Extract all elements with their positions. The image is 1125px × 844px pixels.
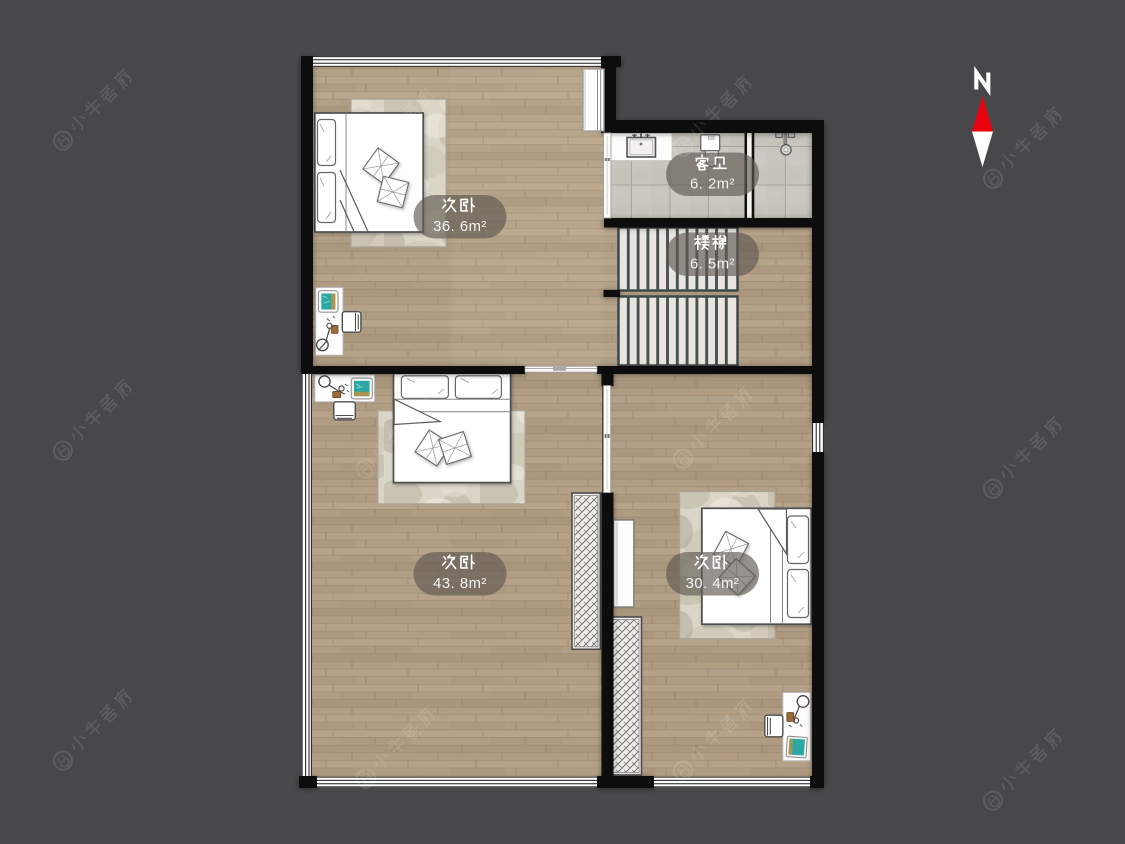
svg-text:43. 8m²: 43. 8m²	[433, 576, 487, 592]
svg-text:30. 4m²: 30. 4m²	[686, 576, 740, 592]
svg-text:36. 6m²: 36. 6m²	[433, 219, 487, 235]
svg-text:6. 2m²: 6. 2m²	[690, 177, 735, 193]
svg-text:6. 5m²: 6. 5m²	[690, 257, 735, 273]
